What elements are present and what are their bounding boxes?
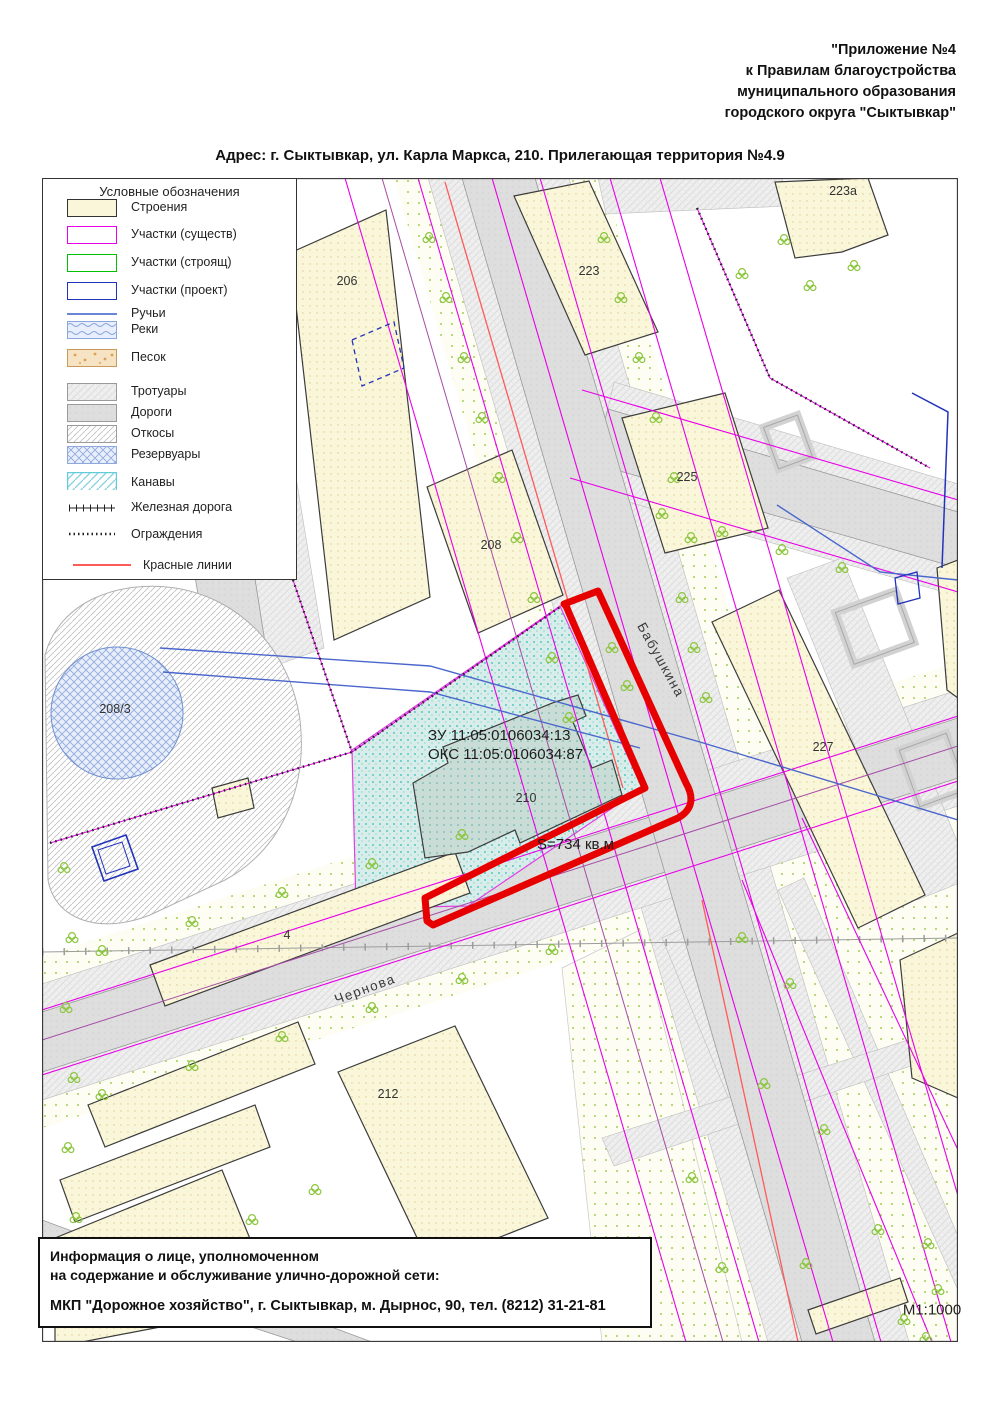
legend-item-ditches: Канавы (43, 472, 296, 494)
green-outline-icon (67, 254, 117, 272)
sidewalk-swatch-icon (67, 383, 117, 401)
document-header: "Приложение №4 к Правилам благоустройств… (496, 40, 956, 124)
legend-item-roads: Дороги (43, 404, 296, 426)
building-label-210: 210 (516, 791, 537, 805)
legend-item-slopes: Откосы (43, 425, 296, 447)
maintenance-info-box: Информация о лице, уполномоченном на сод… (38, 1237, 652, 1328)
reservoir-swatch-icon (67, 446, 117, 464)
legend-title: Условные обозначения (43, 184, 296, 199)
building-label-206: 206 (337, 274, 358, 288)
building-label-227: 227 (813, 740, 834, 754)
map-scale: М1:1000 (903, 1302, 961, 1319)
fence-swatch-icon (67, 529, 117, 547)
legend-item-fences: Ограждения (43, 529, 296, 551)
header-line: городского округа "Сыктывкар" (496, 103, 956, 124)
header-line: к Правилам благоустройства (496, 61, 956, 82)
blue-outline-icon (67, 282, 117, 300)
building-label-208-3: 208/3 (99, 702, 130, 716)
stream-line-icon (67, 313, 117, 315)
legend-item-rivers: Реки (43, 321, 296, 343)
legend-item-railway: Железная дорога (43, 501, 296, 523)
building-label-223: 223 (579, 264, 600, 278)
info-line: на содержание и обслуживание улично-доро… (50, 1266, 640, 1285)
river-swatch-icon (67, 321, 117, 339)
header-line: "Приложение №4 (496, 40, 956, 61)
legend-item-parcels-planned: Участки (проект) (43, 282, 296, 304)
legend-item-sidewalks: Тротуары (43, 383, 296, 405)
slope-swatch-icon (67, 425, 117, 443)
building-label-223a: 223a (829, 184, 857, 198)
building-label-208: 208 (481, 538, 502, 552)
building-label-225: 225 (677, 470, 698, 484)
legend-item-sand: Песок (43, 349, 296, 371)
plan-page: "Приложение №4 к Правилам благоустройств… (0, 0, 1000, 1412)
building-label-212: 212 (378, 1087, 399, 1101)
legend-item-parcels-constructing: Участки (строящ) (43, 254, 296, 276)
magenta-outline-icon (67, 226, 117, 244)
contractor-line: МКП "Дорожное хозяйство", г. Сыктывкар, … (50, 1297, 640, 1316)
ditch-swatch-icon (67, 472, 117, 490)
header-line: муниципального образования (496, 82, 956, 103)
railway-swatch-icon (67, 501, 117, 519)
parcel-annotation: ЗУ 11:05:0106034:13 ОКС 11:05:0106034:87 (428, 726, 583, 764)
address-title: Адрес: г. Сыктывкар, ул. Карла Маркса, 2… (42, 147, 958, 164)
road-swatch-icon (67, 404, 117, 422)
capital-object-number: ОКС 11:05:0106034:87 (428, 745, 583, 764)
legend-item-reservoirs: Резервуары (43, 446, 296, 468)
land-parcel-number: ЗУ 11:05:0106034:13 (428, 726, 583, 745)
legend-item-red-lines: Красные линии (43, 557, 296, 579)
territory-area-label: S=734 кв.м (537, 836, 614, 853)
legend-item-parcels-existing: Участки (существ) (43, 226, 296, 248)
building-swatch-icon (67, 199, 117, 217)
legend-box: Условные обозначения Строения Участки (с… (42, 178, 297, 580)
sand-swatch-icon (67, 349, 117, 367)
info-line: Информация о лице, уполномоченном (50, 1247, 640, 1266)
legend-item-buildings: Строения (43, 199, 296, 221)
building-label-4: 4 (284, 928, 291, 942)
red-line-icon (73, 564, 131, 566)
